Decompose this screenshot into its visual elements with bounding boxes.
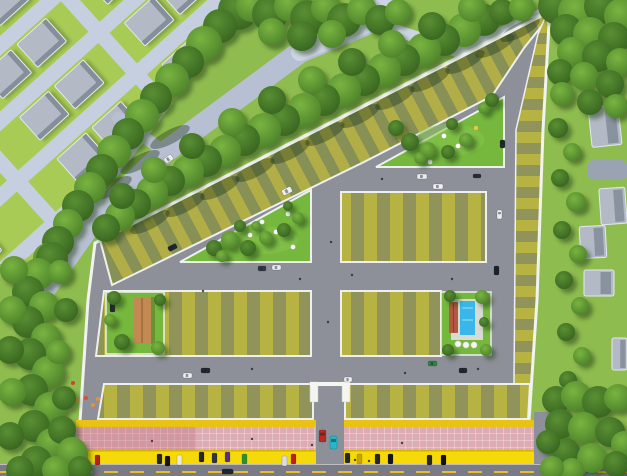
car (428, 361, 437, 366)
tree (104, 314, 116, 326)
flower (96, 397, 100, 401)
parked-car (157, 454, 162, 464)
park-feature (286, 212, 291, 217)
tree (54, 298, 78, 322)
tree (298, 66, 326, 94)
tree (318, 20, 346, 48)
tree (92, 214, 120, 242)
tree (48, 260, 72, 284)
yellow-curb-line (76, 420, 534, 427)
parked-car (282, 456, 287, 466)
tree (154, 294, 166, 306)
pedestrian (354, 459, 356, 461)
tree (604, 94, 627, 118)
tree (573, 347, 591, 365)
tree (234, 220, 246, 232)
plot-block-lower-middle-east (341, 291, 441, 356)
tree (378, 30, 406, 58)
tree (571, 297, 589, 315)
tree (0, 256, 28, 284)
umbrella (463, 342, 469, 348)
car (494, 266, 499, 275)
tree (536, 430, 560, 454)
pedestrian (202, 290, 204, 292)
tree (338, 48, 366, 76)
parked-car (225, 452, 230, 462)
car (344, 377, 352, 382)
tree (259, 231, 273, 245)
car (459, 368, 467, 373)
tree (551, 169, 569, 187)
pedestrian (311, 444, 313, 446)
tree (385, 0, 411, 25)
tree (568, 412, 600, 444)
plot-block-upper-middle (341, 192, 486, 262)
park-feature (428, 160, 433, 165)
tree (277, 223, 291, 237)
retail-strip (88, 451, 534, 466)
car (319, 430, 326, 442)
tree (221, 231, 239, 249)
park-feature (291, 245, 296, 250)
flower (84, 396, 88, 400)
tree (570, 62, 598, 90)
parked-car (357, 454, 362, 464)
parked-car (199, 452, 204, 462)
pedestrian (368, 460, 370, 462)
car (497, 210, 502, 219)
parked-car (95, 455, 100, 465)
car (330, 436, 337, 449)
tree (179, 133, 205, 159)
tree (480, 344, 492, 356)
tree (555, 271, 573, 289)
tree (401, 133, 419, 151)
tree (218, 108, 246, 136)
tree (550, 82, 574, 106)
tree (475, 290, 489, 304)
car (473, 174, 481, 178)
pedestrian (451, 278, 453, 280)
pedestrian (299, 278, 301, 280)
house (612, 338, 627, 370)
tree (547, 59, 573, 85)
parked-car (291, 454, 296, 464)
parked-car (165, 456, 170, 466)
tree (414, 152, 426, 164)
tree (258, 18, 286, 46)
tree (418, 12, 446, 40)
park-feature (474, 126, 479, 131)
tree (485, 93, 499, 107)
tree (446, 118, 458, 130)
tree (251, 221, 261, 231)
tree (107, 291, 121, 305)
tree (577, 89, 603, 115)
car (201, 368, 210, 373)
umbrella (471, 342, 477, 348)
tree (287, 21, 317, 51)
tree (459, 133, 473, 147)
tree (216, 250, 228, 262)
tree (46, 340, 70, 364)
parked-car (427, 455, 432, 465)
pedestrian (251, 368, 253, 370)
parked-car (375, 454, 380, 464)
pedestrian (404, 372, 406, 374)
tree (240, 240, 256, 256)
pedestrian (151, 440, 153, 442)
tree (151, 341, 165, 355)
aerial-masterplan-render (0, 0, 627, 476)
tree (114, 334, 130, 350)
car (183, 373, 192, 378)
parked-car (242, 454, 247, 464)
tree (553, 221, 571, 239)
flower (71, 381, 75, 385)
tree (109, 183, 135, 209)
tree (569, 245, 587, 263)
pedestrian (351, 274, 353, 276)
car (433, 184, 443, 189)
car (272, 265, 281, 270)
pool-umbrellas (455, 341, 477, 348)
tree (283, 201, 293, 211)
tree (141, 157, 167, 183)
tree (388, 120, 404, 136)
tree (292, 212, 304, 224)
house (584, 270, 614, 296)
east-road-stub (588, 160, 627, 180)
plot-block-bottom-east (345, 384, 530, 419)
park-feature (442, 134, 447, 139)
tree (479, 317, 489, 327)
houses-east-side (579, 105, 627, 370)
tree (258, 86, 286, 114)
house (599, 187, 627, 225)
park-feature (456, 144, 461, 149)
parked-car (177, 455, 182, 465)
car (258, 266, 266, 271)
pedestrian (330, 241, 332, 243)
parked-car (388, 454, 393, 464)
park-feature (248, 233, 253, 238)
tree (563, 143, 581, 161)
tree (557, 323, 575, 341)
parked-car (212, 453, 217, 463)
tree (596, 70, 624, 98)
car (417, 174, 427, 179)
pedestrian (401, 442, 403, 444)
flower (91, 403, 95, 407)
tree (441, 145, 455, 159)
tree (52, 386, 76, 410)
parked-car (345, 453, 350, 463)
plot-block-bottom-west (98, 384, 313, 419)
car (500, 140, 505, 148)
car (222, 469, 233, 474)
tree (442, 344, 454, 356)
tree (444, 290, 456, 302)
pedestrian (251, 438, 253, 440)
parked-car (441, 455, 446, 465)
tree (548, 118, 568, 138)
main-road (0, 464, 627, 476)
pedestrian (327, 321, 329, 323)
site-plan-layer (0, 0, 627, 476)
tree (566, 192, 586, 212)
umbrella (455, 341, 461, 347)
swimming-pool (460, 301, 475, 335)
pedestrian (477, 368, 479, 370)
pedestrian (381, 178, 383, 180)
